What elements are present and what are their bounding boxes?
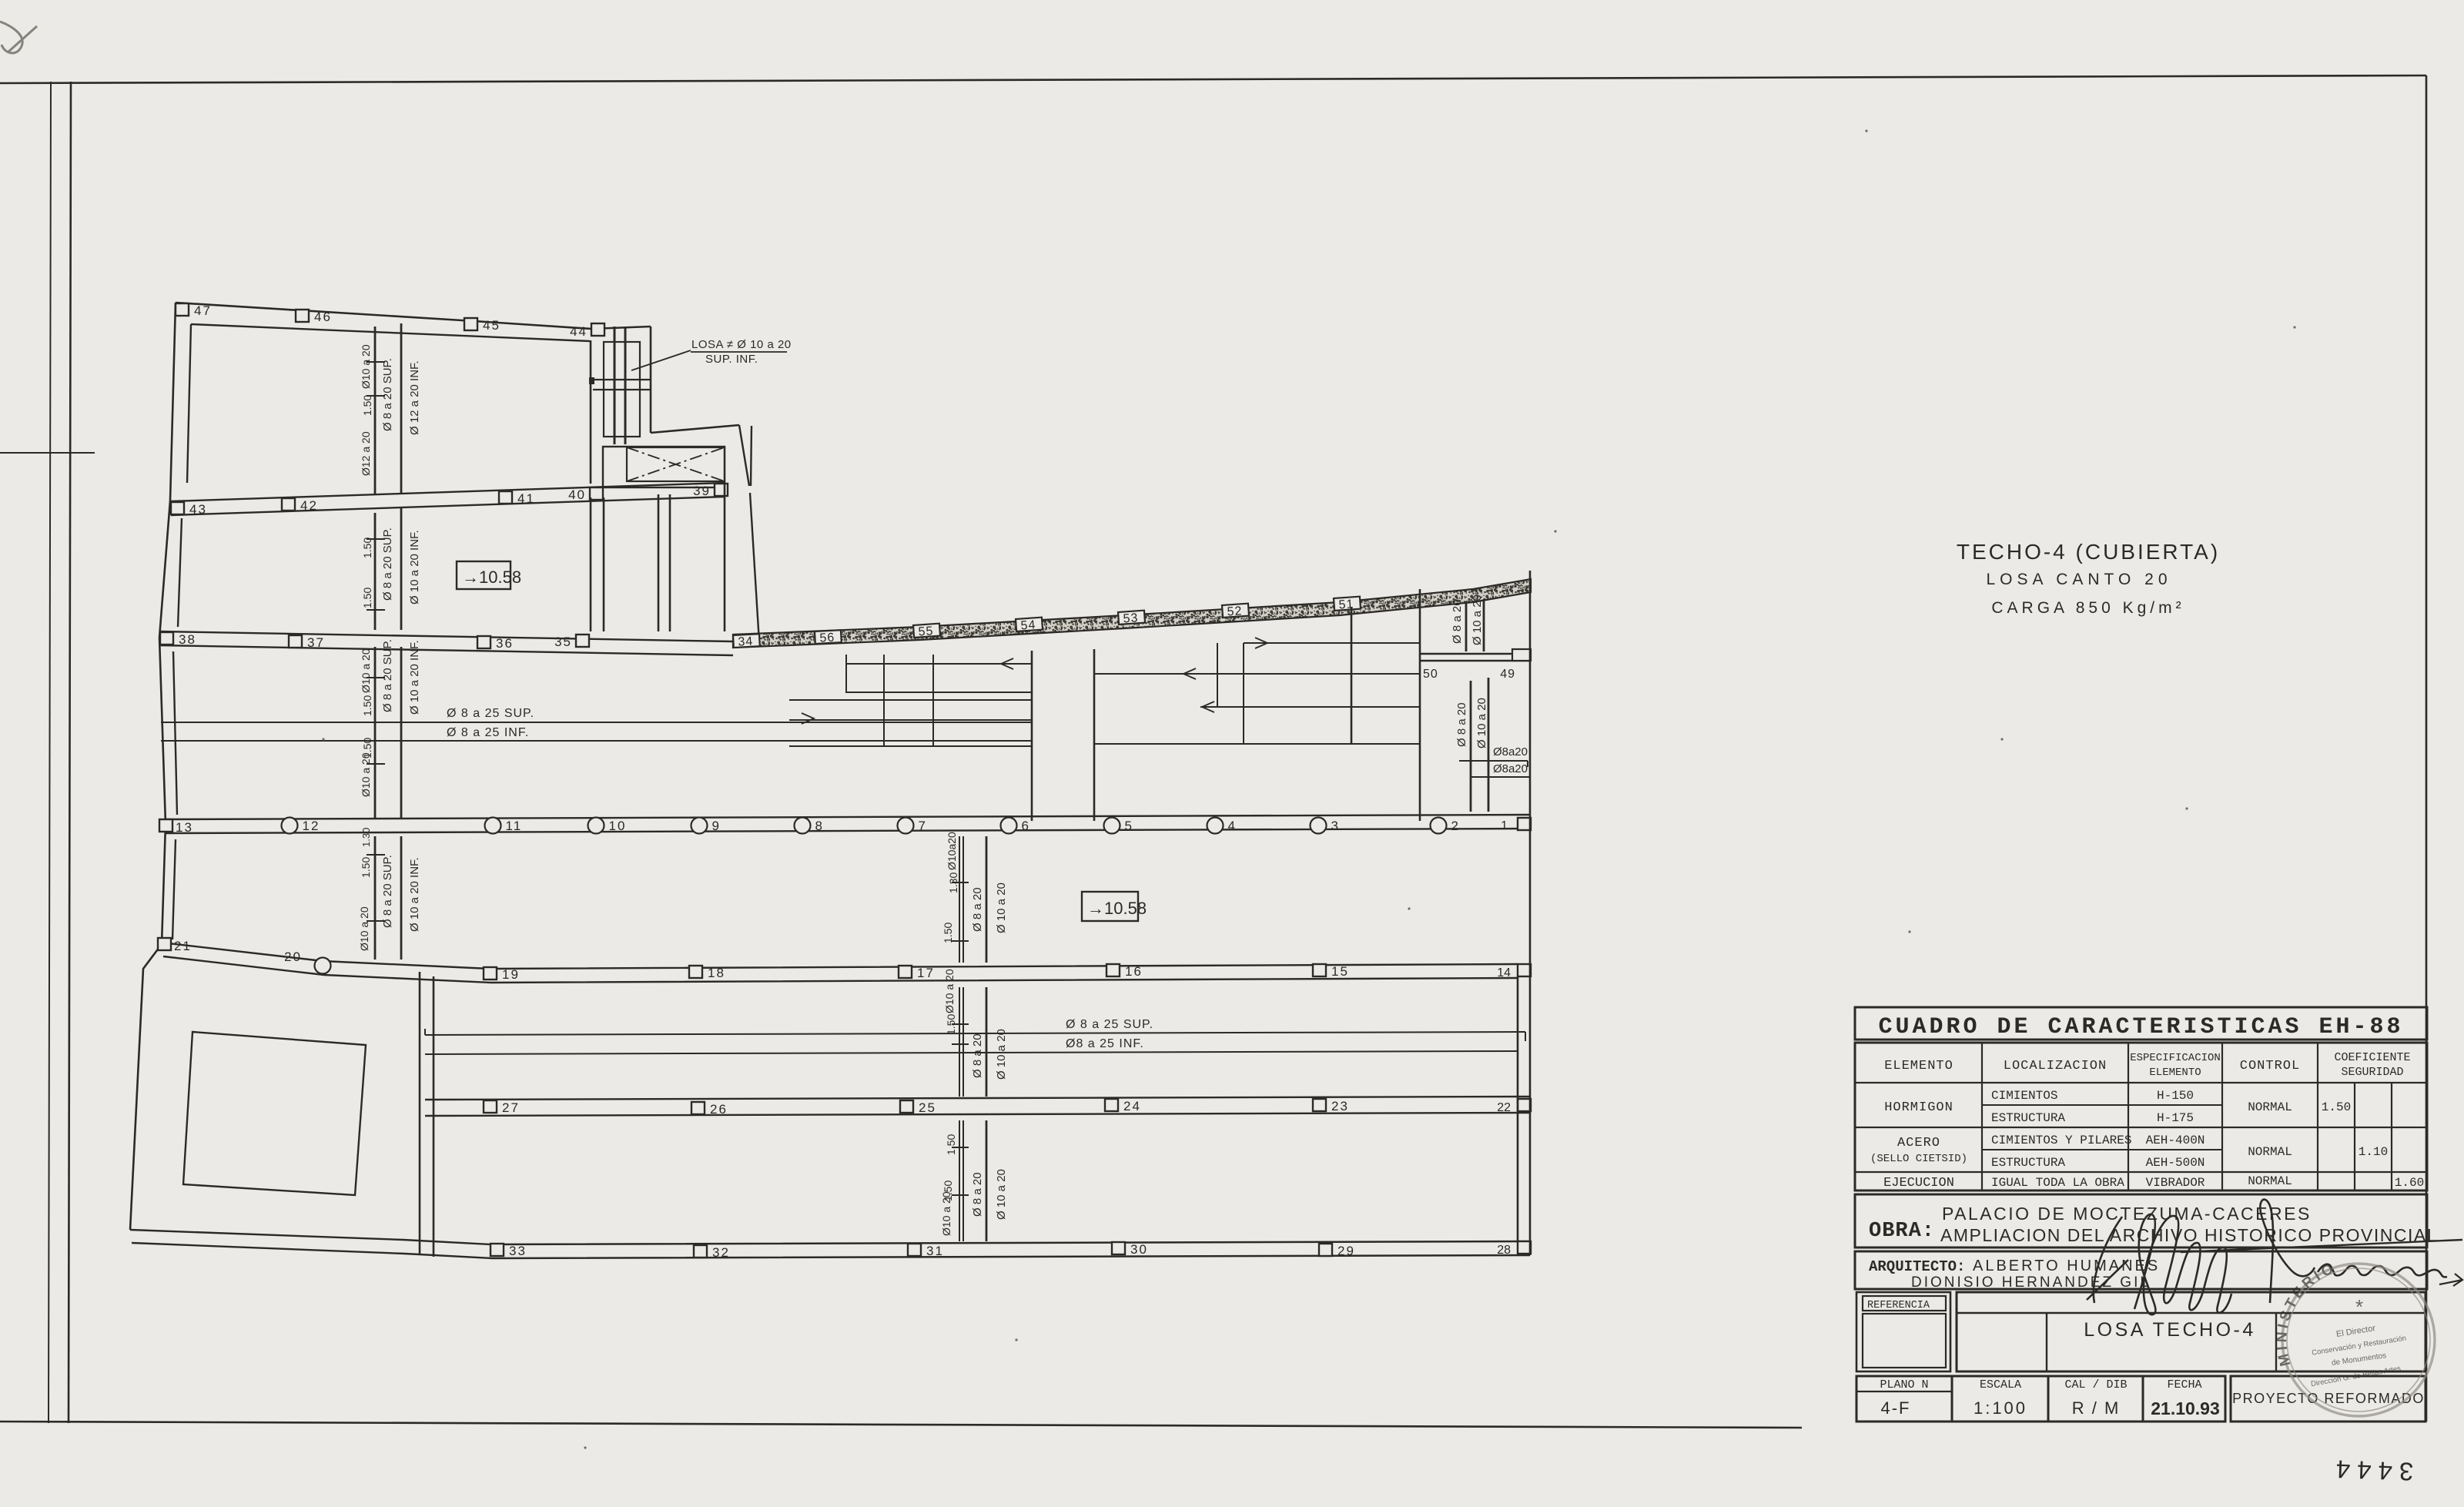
svg-text:1.50: 1.50 <box>2322 1100 2351 1114</box>
svg-text:1.50: 1.50 <box>945 1134 957 1155</box>
svg-text:H-150: H-150 <box>2157 1089 2194 1103</box>
svg-text:52: 52 <box>1227 604 1243 618</box>
svg-text:Ø 10 a 20 INF.: Ø 10 a 20 INF. <box>408 640 421 715</box>
svg-text:SUP. INF.: SUP. INF. <box>705 353 758 366</box>
svg-text:24: 24 <box>1123 1099 1141 1114</box>
svg-text:39: 39 <box>693 484 711 498</box>
svg-text:AEH-500N: AEH-500N <box>2146 1156 2205 1170</box>
svg-text:Ø12 a 20: Ø12 a 20 <box>360 431 372 476</box>
svg-text:ELEMENTO: ELEMENTO <box>2149 1067 2201 1079</box>
svg-text:ALBERTO HUMANES: ALBERTO HUMANES <box>1973 1258 2160 1274</box>
svg-text:Ø8a20: Ø8a20 <box>1493 762 1528 775</box>
svg-text:45: 45 <box>483 318 500 333</box>
svg-text:38: 38 <box>179 632 196 647</box>
svg-text:4: 4 <box>1228 819 1237 833</box>
svg-text:19: 19 <box>502 967 520 982</box>
svg-text:Ø 8 a 25 SUP.: Ø 8 a 25 SUP. <box>1066 1018 1153 1031</box>
svg-text:20: 20 <box>284 949 302 964</box>
svg-text:CUADRO DE CARACTERISTICAS E: CUADRO DE CARACTERISTICAS EH-88 <box>1878 1014 2403 1040</box>
svg-text:17: 17 <box>917 966 935 980</box>
svg-text:Ø 8 a 20: Ø 8 a 20 <box>971 1033 984 1078</box>
svg-text:R / M: R / M <box>2072 1398 2121 1418</box>
svg-text:31: 31 <box>926 1244 944 1258</box>
svg-text:Ø 10 a 20: Ø 10 a 20 <box>995 1029 1008 1080</box>
svg-text:13: 13 <box>176 820 193 835</box>
svg-text:Ø 8 a 20 SUP.: Ø 8 a 20 SUP. <box>381 855 394 928</box>
svg-text:33: 33 <box>509 1244 527 1258</box>
svg-text:IGUAL TODA LA OBRA: IGUAL TODA LA OBRA <box>1991 1176 2124 1190</box>
svg-text:2: 2 <box>1451 819 1460 833</box>
svg-text:22: 22 <box>1497 1101 1511 1114</box>
svg-text:Ø10 a 20: Ø10 a 20 <box>943 969 956 1013</box>
svg-text:40: 40 <box>568 487 586 502</box>
svg-text:1.50: 1.50 <box>360 857 372 878</box>
svg-text:Ø8a20: Ø8a20 <box>1493 745 1528 759</box>
svg-text:ESPECIFICACION: ESPECIFICACION <box>2130 1052 2221 1064</box>
svg-text:Ø 12 a 20 INF.: Ø 12 a 20 INF. <box>408 360 421 435</box>
svg-text:Ø 8 a 20 SUP.: Ø 8 a 20 SUP. <box>381 358 394 431</box>
svg-text:CONTROL: CONTROL <box>2240 1059 2300 1073</box>
svg-text:1.50: 1.50 <box>942 923 954 943</box>
svg-text:28: 28 <box>1497 1244 1511 1257</box>
svg-text:27: 27 <box>502 1100 520 1115</box>
svg-text:47: 47 <box>194 303 212 318</box>
svg-text:LOCALIZACION: LOCALIZACION <box>2004 1059 2107 1073</box>
svg-text:Ø 10 a 20 INF.: Ø 10 a 20 INF. <box>408 857 421 932</box>
svg-text:DIONISIO HERNANDEZ GIL: DIONISIO HERNANDEZ GIL <box>1911 1274 2151 1291</box>
svg-text:11: 11 <box>506 819 523 833</box>
svg-text:COEFICIENTE: COEFICIENTE <box>2334 1051 2410 1064</box>
svg-text:29: 29 <box>1337 1244 1355 1258</box>
svg-text:23: 23 <box>1331 1099 1349 1114</box>
svg-text:36: 36 <box>496 636 514 651</box>
svg-text:TECHO-4 (CUBIERTA): TECHO-4 (CUBIERTA) <box>1957 540 2220 564</box>
svg-text:Ø10 a 20: Ø10 a 20 <box>360 344 372 389</box>
svg-text:16: 16 <box>1125 964 1143 979</box>
svg-text:Ø 10 a 20: Ø 10 a 20 <box>995 882 1008 933</box>
svg-text:1:100: 1:100 <box>1974 1398 2027 1418</box>
svg-text:FECHA: FECHA <box>2167 1378 2201 1391</box>
svg-text:21.10.93: 21.10.93 <box>2151 1398 2220 1418</box>
svg-text:REFERENCIA: REFERENCIA <box>1867 1300 1930 1311</box>
svg-text:CIMIENTOS Y PILARES: CIMIENTOS Y PILARES <box>1991 1134 2131 1147</box>
svg-text:NORMAL: NORMAL <box>2248 1145 2292 1159</box>
svg-text:18: 18 <box>708 966 725 980</box>
svg-text:5: 5 <box>1125 819 1133 833</box>
svg-text:Ø 10 a 20 INF.: Ø 10 a 20 INF. <box>408 530 421 604</box>
svg-text:1.50: 1.50 <box>361 695 373 716</box>
svg-text:15: 15 <box>1331 964 1349 979</box>
svg-text:50: 50 <box>1423 668 1438 681</box>
svg-text:PALACIO DE MOCTEZUMA-CACERES: PALACIO DE MOCTEZUMA-CACERES <box>1942 1204 2312 1224</box>
svg-text:Ø 8 a 25 SUP.: Ø 8 a 25 SUP. <box>447 707 534 720</box>
svg-text:VIBRADOR: VIBRADOR <box>2146 1176 2205 1190</box>
svg-text:CAL / DIB: CAL / DIB <box>2064 1378 2127 1391</box>
svg-text:12: 12 <box>303 819 320 833</box>
svg-text:56: 56 <box>819 631 835 645</box>
svg-text:Ø 8 a 25 INF.: Ø 8 a 25 INF. <box>447 726 529 739</box>
svg-text:ESTRUCTURA: ESTRUCTURA <box>1991 1111 2065 1125</box>
svg-text:1.50: 1.50 <box>361 588 373 608</box>
svg-text:3444: 3444 <box>2328 1455 2414 1486</box>
svg-text:Ø8 a 25 INF.: Ø8 a 25 INF. <box>1066 1037 1144 1050</box>
svg-text:34: 34 <box>738 635 754 649</box>
svg-text:*: * <box>2355 1295 2363 1318</box>
svg-text:Ø 8 a 20: Ø 8 a 20 <box>1455 702 1468 747</box>
svg-text:1.50: 1.50 <box>361 395 373 416</box>
svg-text:1.60: 1.60 <box>2395 1176 2424 1190</box>
svg-text:21: 21 <box>174 939 192 953</box>
svg-text:AMPLIACION DEL ARCHIVO HISTORI: AMPLIACION DEL ARCHIVO HISTORICO PROVINC… <box>1940 1225 2438 1245</box>
svg-text:HORMIGON: HORMIGON <box>1884 1100 1953 1115</box>
svg-text:EJECUCION: EJECUCION <box>1883 1176 1954 1191</box>
svg-text:Ø10 a 20: Ø10 a 20 <box>940 1191 952 1236</box>
svg-text:Ø 8 a 20: Ø 8 a 20 <box>971 1172 984 1217</box>
svg-text:37: 37 <box>307 635 325 650</box>
svg-text:Ø 10 a 20: Ø 10 a 20 <box>1471 594 1484 645</box>
svg-text:Ø 10 a 20: Ø 10 a 20 <box>1475 698 1488 748</box>
svg-text:1: 1 <box>1501 819 1508 832</box>
svg-text:1.10: 1.10 <box>2359 1145 2388 1159</box>
svg-text:CIMIENTOS: CIMIENTOS <box>1991 1089 2057 1103</box>
svg-text:ARQUITECTO:: ARQUITECTO: <box>1869 1258 1965 1275</box>
svg-text:32: 32 <box>712 1245 730 1260</box>
svg-text:54: 54 <box>1020 618 1036 632</box>
svg-text:41: 41 <box>517 491 535 506</box>
svg-text:55: 55 <box>918 625 934 638</box>
svg-text:LOSA CANTO 20: LOSA CANTO 20 <box>1986 571 2171 588</box>
svg-text:1.50: 1.50 <box>361 537 373 558</box>
svg-text:7: 7 <box>919 819 927 833</box>
svg-text:6: 6 <box>1022 819 1030 833</box>
svg-text:43: 43 <box>189 502 207 517</box>
svg-text:SEGURIDAD: SEGURIDAD <box>2341 1066 2403 1079</box>
svg-text:44: 44 <box>570 324 588 339</box>
svg-text:NORMAL: NORMAL <box>2248 1100 2292 1114</box>
svg-text:ELEMENTO: ELEMENTO <box>1884 1059 1953 1073</box>
svg-text:Ø 8 a 20: Ø 8 a 20 <box>971 887 984 932</box>
svg-text:46: 46 <box>314 310 332 324</box>
svg-text:Ø 8 a 20 SUP.: Ø 8 a 20 SUP. <box>381 639 394 712</box>
svg-text:4-F: 4-F <box>1881 1398 1911 1418</box>
svg-text:→10.58: →10.58 <box>462 568 521 587</box>
svg-text:PLANO N: PLANO N <box>1880 1378 1928 1391</box>
svg-text:Ø10 a 20: Ø10 a 20 <box>358 906 370 951</box>
svg-text:→10.58: →10.58 <box>1087 899 1147 918</box>
svg-text:LOSA ≠ Ø 10 a 20: LOSA ≠ Ø 10 a 20 <box>691 338 792 351</box>
svg-text:30: 30 <box>1130 1242 1148 1257</box>
svg-text:35: 35 <box>554 635 572 649</box>
svg-text:(SELLO CIETSID): (SELLO CIETSID) <box>1870 1153 1967 1165</box>
svg-text:Ø 8 a 20: Ø 8 a 20 <box>1451 599 1464 644</box>
svg-text:Ø 10 a 20: Ø 10 a 20 <box>995 1169 1008 1220</box>
svg-text:26: 26 <box>710 1102 728 1117</box>
svg-text:53: 53 <box>1123 611 1139 625</box>
svg-text:ESCALA: ESCALA <box>1980 1378 2021 1391</box>
svg-text:OBRA:: OBRA: <box>1869 1220 1935 1243</box>
svg-text:8: 8 <box>815 819 824 833</box>
svg-text:Ø10a20: Ø10a20 <box>946 832 958 870</box>
svg-text:AEH-400N: AEH-400N <box>2146 1134 2205 1147</box>
svg-text:ACERO: ACERO <box>1897 1136 1940 1150</box>
svg-text:Ø10 a 20: Ø10 a 20 <box>360 648 372 693</box>
svg-text:25: 25 <box>919 1100 936 1115</box>
svg-text:PROYECTO REFORMADO: PROYECTO REFORMADO <box>2232 1391 2425 1406</box>
svg-text:42: 42 <box>300 498 318 513</box>
svg-text:NORMAL: NORMAL <box>2248 1174 2292 1188</box>
svg-text:14: 14 <box>1497 966 1511 980</box>
svg-text:H-175: H-175 <box>2157 1111 2194 1125</box>
svg-text:CARGA 850 Kg/m²: CARGA 850 Kg/m² <box>1991 599 2184 617</box>
svg-text:LOSA TECHO-4: LOSA TECHO-4 <box>2084 1319 2256 1341</box>
svg-text:49: 49 <box>1500 668 1515 681</box>
svg-text:1.50: 1.50 <box>361 738 373 759</box>
svg-text:3: 3 <box>1331 819 1340 833</box>
svg-text:1.30: 1.30 <box>360 828 372 847</box>
svg-text:10: 10 <box>609 819 627 833</box>
svg-text:9: 9 <box>712 819 721 833</box>
svg-text:ESTRUCTURA: ESTRUCTURA <box>1991 1156 2065 1170</box>
